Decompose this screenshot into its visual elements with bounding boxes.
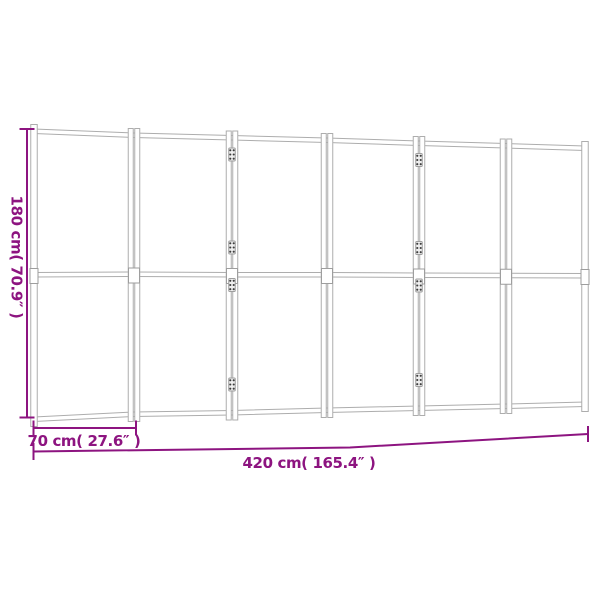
middle-rail-bracket (501, 269, 512, 284)
hinge-screw-dot (420, 375, 422, 377)
product-dimension-image: 180 cm( 70.9″ ) 70 cm( 27.6″ ) 420 cm( 1… (0, 0, 600, 600)
hinge-screw-dot (233, 242, 235, 244)
hinge-screw-dot (233, 149, 235, 151)
hinge-screw-dot (420, 163, 422, 165)
hinge-screw-dot (229, 284, 231, 286)
hinge-screw-dot (420, 289, 422, 291)
hinge-screw-dot (420, 379, 422, 381)
hinge-screw-dot (233, 158, 235, 160)
middle-rail-bracket (129, 268, 140, 283)
hinge (229, 279, 236, 292)
middle-rail-bracket (30, 269, 38, 284)
hinge (229, 148, 236, 161)
hinge-screw-dot (416, 243, 418, 245)
hinge-screw-dot (233, 284, 235, 286)
hinge (416, 374, 423, 387)
hinge-screw-dot (420, 243, 422, 245)
hinge-screw-dot (229, 251, 231, 253)
hinge-screw-dot (416, 289, 418, 291)
hinge-screw-dot (229, 379, 231, 381)
middle-rail-bracket (581, 270, 589, 285)
hinge-screw-dot (229, 383, 231, 385)
panel-width-dimension: 70 cm( 27.6″ ) (28, 421, 141, 451)
hinge-screw-dot (229, 242, 231, 244)
height-dimension-label: 180 cm( 70.9″ ) (8, 196, 26, 319)
hinge-screw-dot (416, 251, 418, 253)
hinge-screw-dot (420, 251, 422, 253)
total-width-dimension-label: 420 cm( 165.4″ ) (243, 454, 376, 472)
hinge-screw-dot (229, 153, 231, 155)
hinge-screw-dot (229, 158, 231, 160)
hinge-screw-dot (229, 246, 231, 248)
panel-width-dimension-label: 70 cm( 27.6″ ) (28, 432, 141, 450)
hinge-screw-dot (233, 280, 235, 282)
hinge-screw-dot (229, 288, 231, 290)
hinge-screw-dot (416, 247, 418, 249)
hinge-screw-dot (233, 383, 235, 385)
hinge-screw-dot (229, 280, 231, 282)
room-divider-drawing (30, 125, 589, 427)
hinge-screw-dot (420, 284, 422, 286)
hinge-screw-dot (233, 379, 235, 381)
hinge-screw-dot (416, 155, 418, 157)
hinge-screw-dot (416, 379, 418, 381)
hinge-screw-dot (229, 149, 231, 151)
hinge (416, 279, 423, 292)
hinge-screw-dot (420, 383, 422, 385)
hinge-screw-dot (416, 284, 418, 286)
hinge-screw-dot (416, 375, 418, 377)
hinge-screw-dot (420, 280, 422, 282)
hinge-screw-dot (233, 153, 235, 155)
hinge (416, 154, 423, 167)
hinge-screw-dot (420, 155, 422, 157)
hinge (229, 241, 236, 254)
hinge-screw-dot (416, 163, 418, 165)
hinge-screw-dot (233, 246, 235, 248)
hinge-screw-dot (233, 388, 235, 390)
middle-rail-bracket (322, 269, 333, 284)
hinge (229, 378, 236, 391)
hinge-screw-dot (416, 383, 418, 385)
room-divider-dimension-diagram: 180 cm( 70.9″ ) 70 cm( 27.6″ ) 420 cm( 1… (0, 0, 600, 600)
hinge-screw-dot (416, 159, 418, 161)
hinge-screw-dot (229, 388, 231, 390)
hinge-screw-dot (416, 280, 418, 282)
hinge-screw-dot (233, 288, 235, 290)
hinge-screw-dot (420, 159, 422, 161)
hinge-screw-dot (233, 251, 235, 253)
hinge (416, 242, 423, 255)
hinge-screw-dot (420, 247, 422, 249)
